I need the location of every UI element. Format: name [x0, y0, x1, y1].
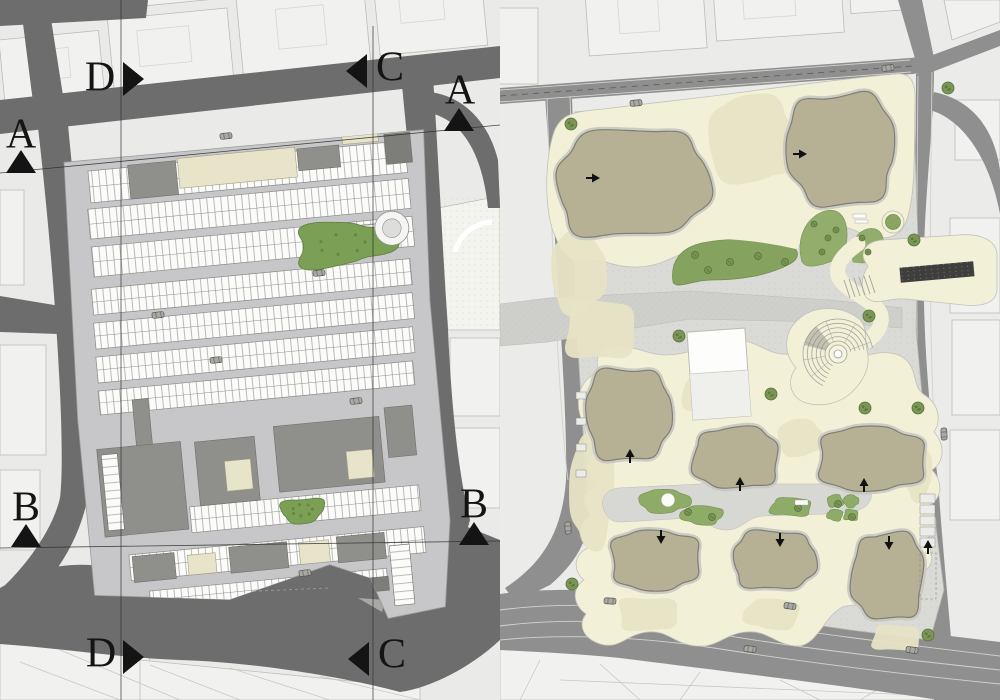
tree: [819, 249, 825, 255]
car: [220, 132, 233, 139]
car: [565, 522, 571, 534]
car: [744, 646, 756, 653]
tree: [795, 505, 802, 512]
building-roof: [733, 530, 817, 589]
building-block: [384, 405, 417, 457]
tree: [685, 509, 692, 516]
building-roof: [611, 530, 699, 591]
tree: [859, 235, 865, 241]
section-letter-A: A: [445, 68, 476, 114]
car-body: [220, 132, 233, 139]
building-footprint: [818, 426, 924, 491]
tree: [833, 227, 839, 233]
tree: [705, 267, 712, 274]
building-block: [384, 132, 413, 164]
tree: [835, 501, 842, 508]
tree-texture: [945, 85, 948, 88]
tree-texture: [826, 237, 827, 238]
tree-texture: [947, 89, 949, 91]
tree: [673, 330, 685, 342]
tree: [566, 578, 578, 590]
tree-texture: [814, 224, 815, 225]
tree-canopy: [755, 253, 762, 260]
car-body: [882, 64, 894, 71]
building-block-shape: [384, 405, 417, 457]
car-body: [299, 569, 312, 576]
tree: [811, 221, 817, 227]
building-block: [297, 145, 341, 171]
car-body: [604, 598, 616, 605]
tree-texture: [851, 518, 852, 519]
tree-canopy: [709, 514, 716, 521]
car-body: [350, 397, 363, 404]
tree-canopy: [908, 234, 920, 246]
tree-canopy: [825, 235, 831, 241]
section-letter-C: C: [378, 632, 406, 678]
section-letter-D: D: [85, 55, 115, 101]
garden-feature: [661, 493, 675, 507]
tree-texture: [917, 409, 919, 411]
tree-canopy: [727, 259, 734, 266]
tree-canopy: [865, 249, 871, 255]
car-body: [152, 311, 165, 318]
section-letter-B: B: [460, 482, 488, 528]
parking-bay: [576, 418, 586, 425]
tree-texture: [571, 585, 573, 587]
car-body: [906, 646, 919, 653]
amphitheater-center: [834, 350, 842, 358]
planter-green: [886, 215, 901, 230]
tree-texture: [757, 257, 758, 258]
car: [630, 99, 642, 106]
building-block-shape: [384, 132, 413, 164]
tree: [825, 235, 831, 241]
car: [350, 397, 363, 404]
tree-canopy: [782, 259, 789, 266]
tree: [942, 82, 954, 94]
tree-texture: [866, 251, 867, 252]
car: [882, 64, 894, 71]
building-block-shape: [297, 145, 341, 171]
tree-canopy: [692, 252, 699, 259]
building-block: [336, 532, 386, 562]
building-block-shape: [346, 449, 375, 479]
parking-bay: [576, 470, 586, 477]
tree-texture: [686, 511, 688, 513]
tree-texture: [868, 252, 869, 253]
tree: [727, 259, 734, 266]
car: [299, 569, 312, 576]
round-planter: [882, 211, 904, 233]
building-block: [224, 459, 253, 491]
khaki-lawn: [565, 299, 634, 358]
tree: [865, 249, 871, 255]
tree-texture: [868, 317, 870, 319]
building-block: [229, 542, 289, 573]
building-block-shape: [187, 553, 217, 576]
tree-canopy: [859, 402, 871, 414]
tree-texture: [756, 255, 758, 257]
tree-texture: [866, 313, 869, 316]
building-block-shape: [229, 542, 289, 573]
tree-canopy: [859, 235, 865, 241]
tree: [709, 514, 716, 521]
landscape-plan-drawing: [500, 0, 1000, 700]
tree-texture: [711, 518, 712, 519]
tree-canopy: [705, 267, 712, 274]
car: [152, 311, 165, 318]
tree-texture: [828, 238, 829, 239]
tree-canopy: [835, 501, 842, 508]
pergola: [795, 500, 808, 505]
tree-canopy: [795, 505, 802, 512]
tree-texture: [915, 405, 918, 408]
building-block: [346, 449, 375, 479]
building-block-shape: [128, 161, 179, 199]
tree-canopy: [833, 227, 839, 233]
section-letter-C: C: [376, 45, 404, 91]
building-block-shape: [224, 459, 253, 491]
landscape-plan-panel: [500, 0, 1000, 700]
tree-texture: [729, 263, 730, 264]
tree-texture: [860, 237, 861, 238]
tree-texture: [834, 229, 835, 230]
tree-texture: [836, 230, 837, 231]
tree-texture: [796, 507, 798, 509]
tree-texture: [927, 636, 929, 638]
tree-canopy: [811, 221, 817, 227]
tree-canopy: [942, 82, 954, 94]
site-plan-board: DCAABBDC: [0, 0, 1000, 700]
tree: [922, 629, 934, 641]
tree-texture: [687, 513, 688, 514]
building-footprint: [556, 130, 713, 238]
tree: [908, 234, 920, 246]
tree-texture: [694, 256, 695, 257]
tree-texture: [768, 391, 771, 394]
building-block-shape: [336, 532, 386, 562]
tree-canopy: [566, 578, 578, 590]
building-block: [132, 553, 176, 583]
car: [784, 602, 797, 609]
car-body: [630, 99, 642, 106]
building-footprint: [733, 530, 817, 589]
building-roof: [586, 368, 673, 461]
tree-canopy: [863, 310, 875, 322]
building-block: [187, 553, 217, 576]
parking-bay: [576, 392, 586, 399]
tree-texture: [707, 271, 708, 272]
tree: [849, 514, 856, 521]
building-footprint: [786, 91, 895, 207]
tree-texture: [568, 121, 571, 124]
tree: [863, 310, 875, 322]
tree-canopy: [849, 514, 856, 521]
tree-texture: [797, 509, 798, 510]
tree-texture: [850, 516, 852, 518]
left-site-plate: [52, 117, 470, 646]
tree-texture: [812, 223, 813, 224]
ground-floor-plan-panel: DCAABBDC: [0, 0, 500, 700]
tree-texture: [911, 237, 914, 240]
pavilion-building: [687, 328, 751, 420]
car: [941, 428, 947, 440]
section-letter-D: D: [86, 631, 116, 677]
tree-canopy: [673, 330, 685, 342]
car: [210, 356, 223, 363]
car-body: [565, 522, 571, 534]
tree-texture: [862, 238, 863, 239]
tree-canopy: [912, 402, 924, 414]
building-roof: [818, 426, 924, 491]
tree-texture: [569, 581, 572, 584]
tree: [782, 259, 789, 266]
khaki-lawn: [618, 598, 677, 631]
tree: [565, 118, 577, 130]
car-body: [313, 269, 326, 276]
parking-bay: [920, 505, 935, 514]
tree-texture: [836, 503, 838, 505]
tree-texture: [783, 261, 785, 263]
tree-texture: [770, 395, 772, 397]
parking-bay: [920, 494, 935, 503]
car-body: [210, 356, 223, 363]
tree: [912, 402, 924, 414]
car-body: [784, 602, 797, 609]
tree-texture: [822, 252, 823, 253]
tree-texture: [864, 409, 866, 411]
parking-bay: [576, 444, 586, 451]
building-footprint: [611, 530, 699, 591]
car-body: [744, 646, 756, 653]
parking-bay: [920, 516, 935, 525]
tree-texture: [693, 254, 695, 256]
section-letter-B: B: [12, 485, 40, 531]
building-block-shape: [132, 553, 176, 583]
building-block: [128, 161, 179, 199]
tree-canopy: [922, 629, 934, 641]
tree-texture: [784, 263, 785, 264]
building-roof: [691, 426, 778, 488]
tree-texture: [820, 251, 821, 252]
tree-texture: [570, 125, 572, 127]
tree-texture: [710, 516, 712, 518]
tree-canopy: [819, 249, 825, 255]
tree-canopy: [685, 509, 692, 516]
parking-bay: [920, 527, 935, 536]
tree: [692, 252, 699, 259]
tree-texture: [913, 241, 915, 243]
tree-texture: [676, 333, 679, 336]
tree-texture: [706, 269, 708, 271]
tree-canopy: [765, 388, 777, 400]
tree-texture: [925, 632, 928, 635]
tree-texture: [837, 505, 838, 506]
ground-floor-plan-drawing: DCAABBDC: [0, 0, 500, 700]
tree-texture: [678, 337, 680, 339]
tree-texture: [862, 405, 865, 408]
tree: [755, 253, 762, 260]
car: [604, 598, 616, 605]
tree-canopy: [565, 118, 577, 130]
building-footprint: [586, 368, 673, 461]
car: [906, 646, 919, 653]
building-footprint: [691, 426, 778, 488]
tree-texture: [728, 261, 730, 263]
car: [313, 269, 326, 276]
tree: [765, 388, 777, 400]
car-body: [941, 428, 947, 440]
tree: [859, 402, 871, 414]
